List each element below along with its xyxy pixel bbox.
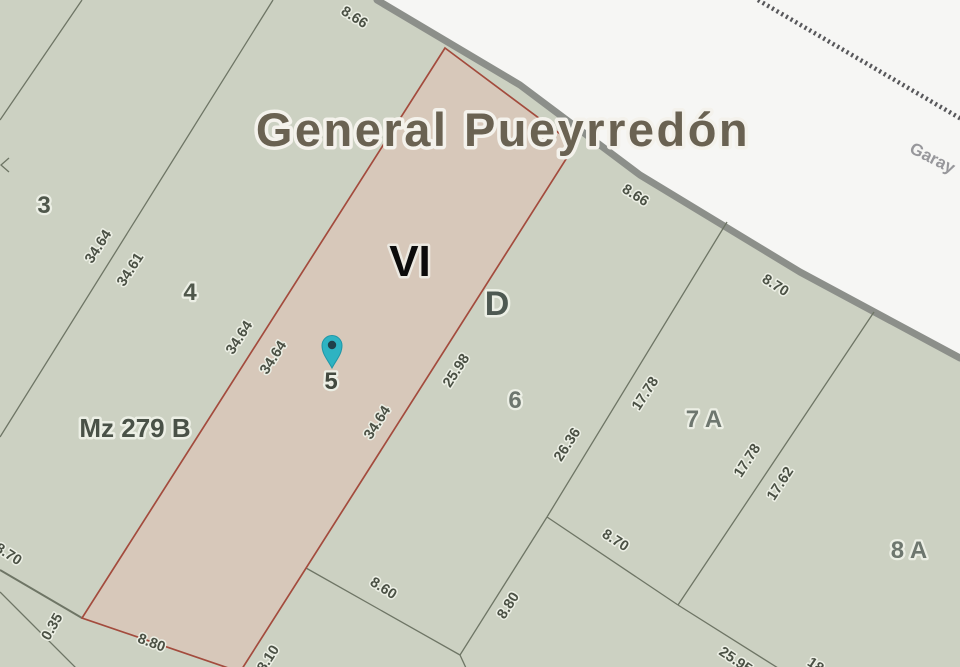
zone-label-d: D — [485, 285, 510, 323]
location-pin-dot — [328, 341, 336, 349]
municipality-title: General Pueyrredón — [256, 103, 750, 156]
parcel-label-8a: 8 A — [891, 537, 927, 564]
parcel-label-7a: 7 A — [686, 406, 722, 433]
cadastral-map[interactable]: General Pueyrredón VI D Mz 279 B Garay 3… — [0, 0, 960, 667]
parcel-label-6: 6 — [508, 387, 521, 414]
map-canvas[interactable]: General Pueyrredón VI D Mz 279 B Garay 3… — [0, 0, 960, 667]
parcel-label-3: 3 — [37, 192, 50, 219]
block-code-label: Mz 279 B — [79, 413, 190, 443]
parcel-label-4: 4 — [183, 279, 197, 306]
parcel-label-5: 5 — [324, 368, 337, 395]
section-label-vi: VI — [389, 237, 431, 286]
